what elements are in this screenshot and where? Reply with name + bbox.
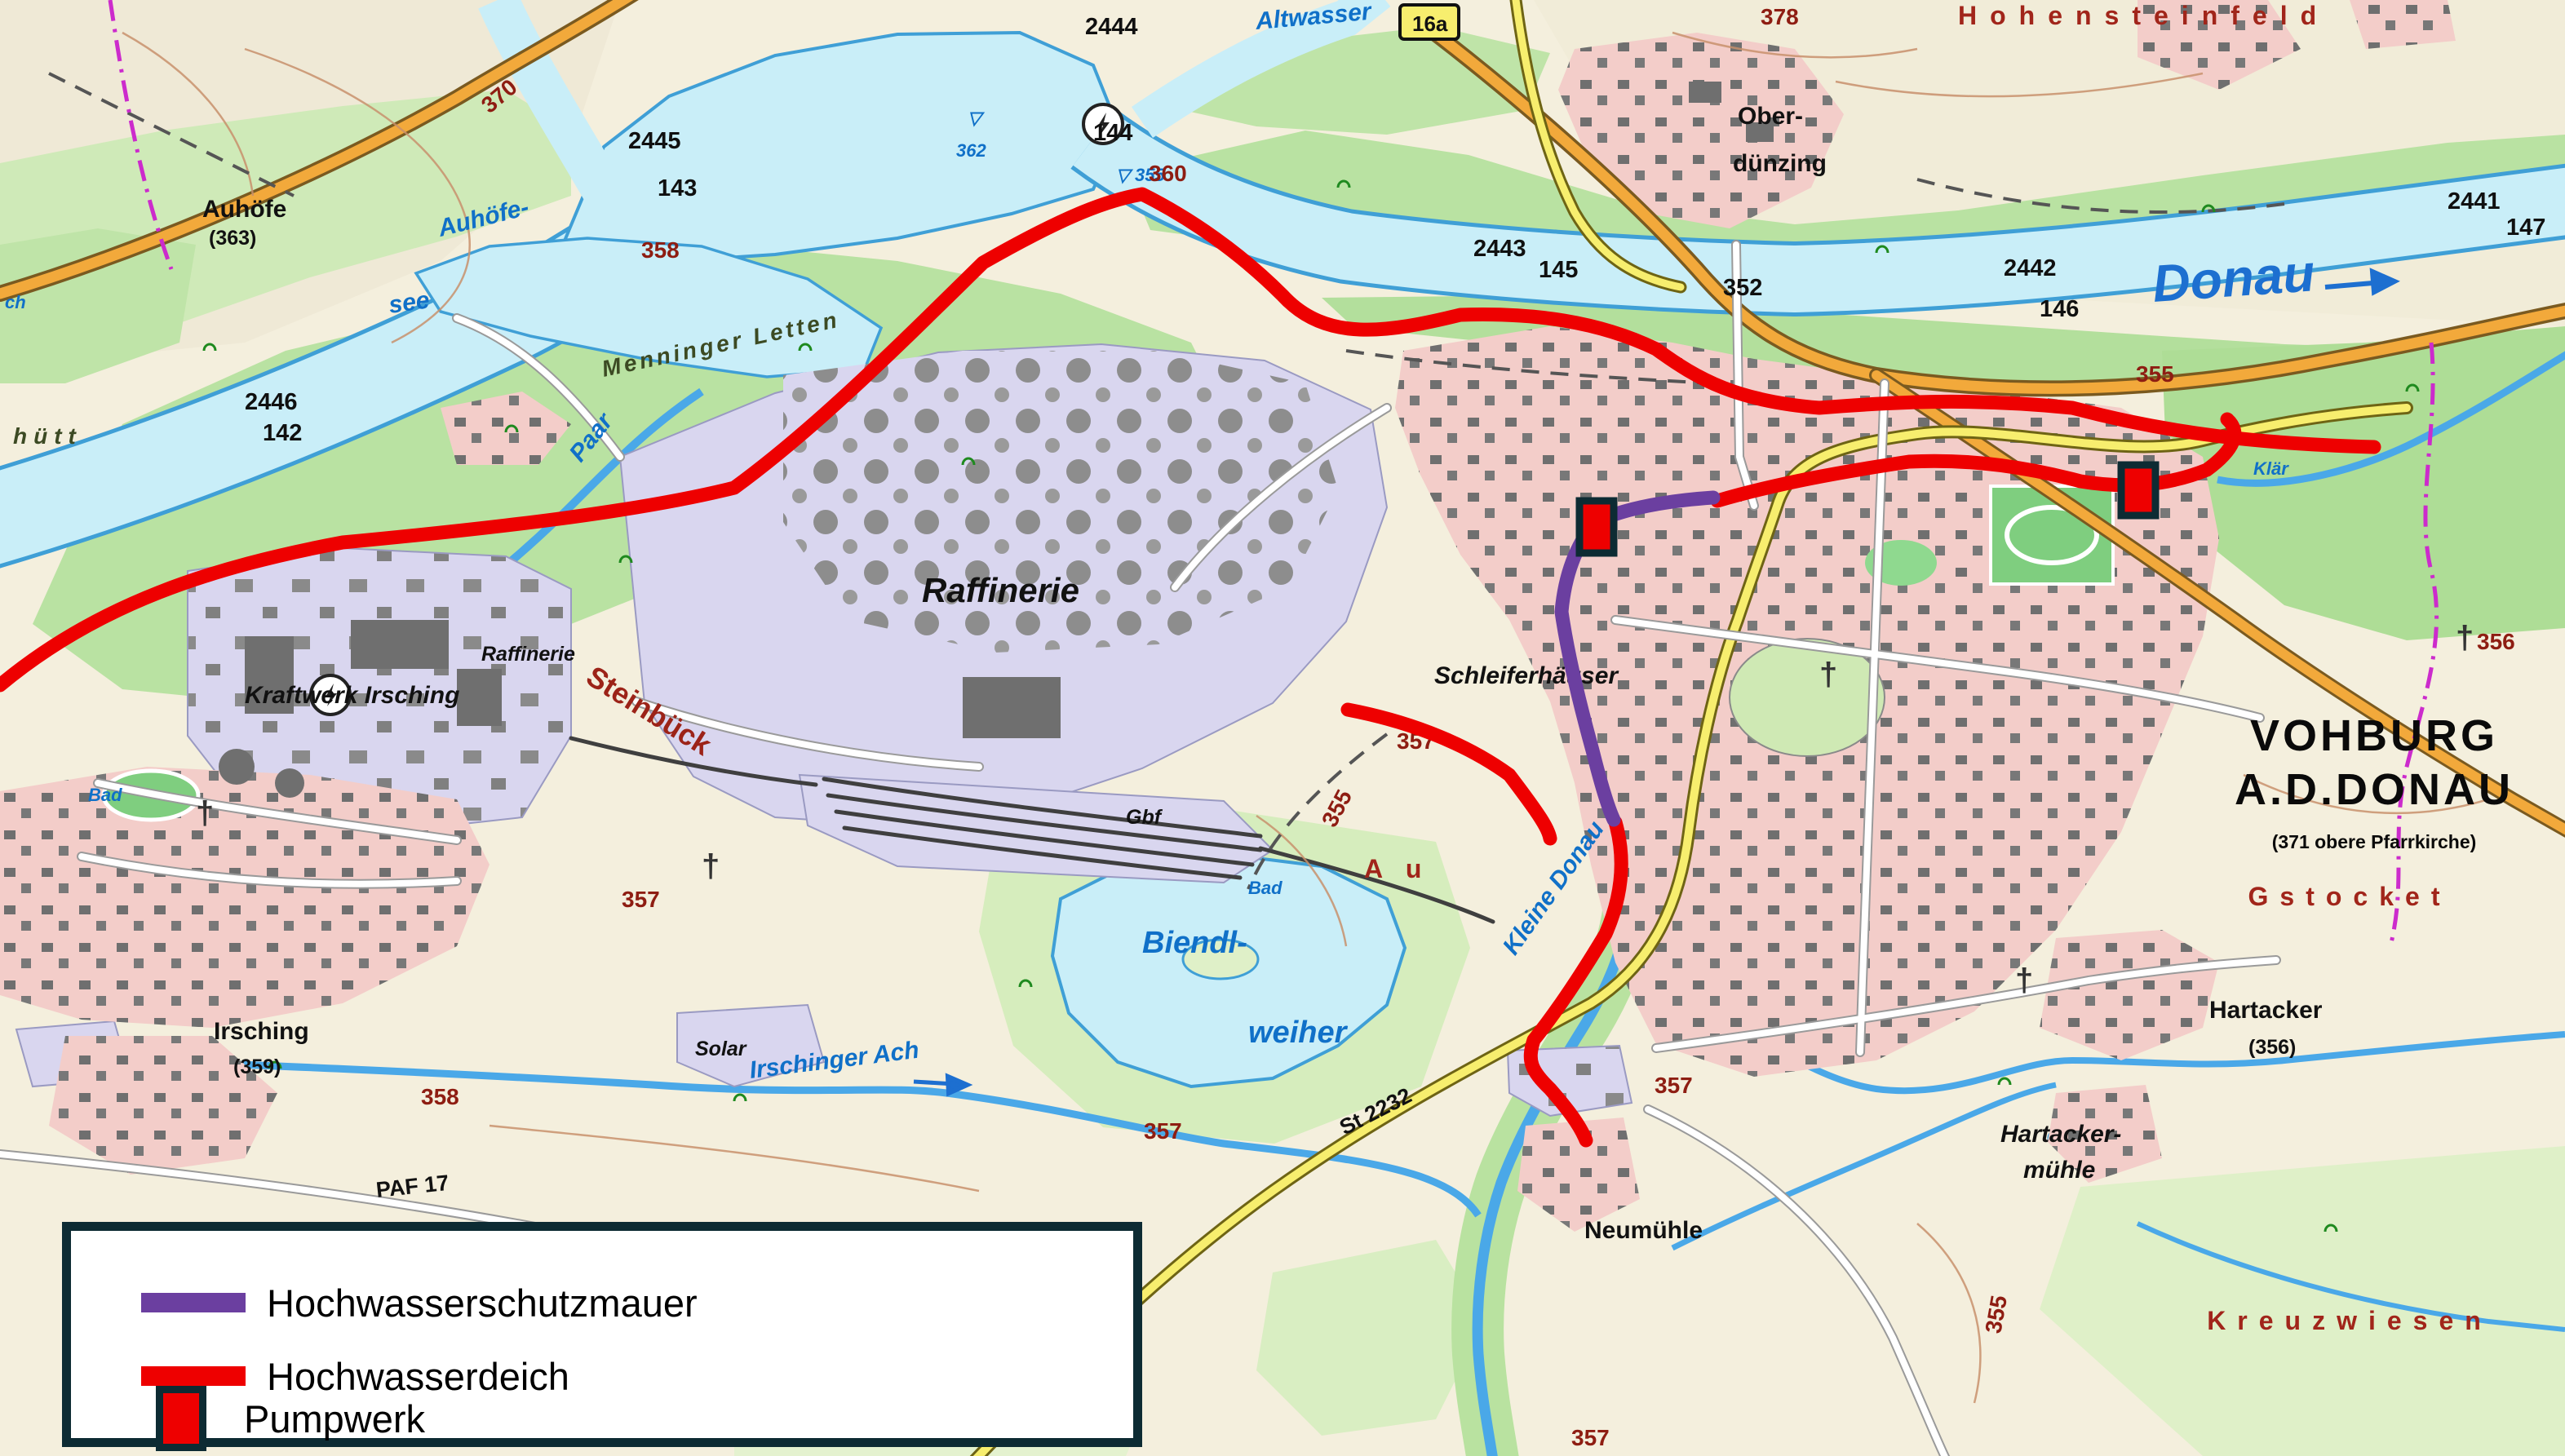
map-label: hütt <box>13 423 82 449</box>
map-label: Auhöfe <box>202 196 286 223</box>
map-label: Kreuzwiesen <box>2207 1306 2492 1335</box>
map-label: 147 <box>2506 215 2545 241</box>
map-label: Raffinerie <box>481 643 575 666</box>
map-label: VOHBURG <box>2250 711 2498 760</box>
map-label: 357 <box>1571 1425 1610 1450</box>
map-label: Raffinerie <box>922 571 1079 609</box>
map-label: mühle <box>2023 1157 2095 1184</box>
map-label: (359) <box>233 1055 281 1078</box>
map-label: 2446 <box>245 389 298 415</box>
map-label: Hartacker <box>2209 997 2323 1024</box>
map-label: 2445 <box>628 128 681 154</box>
pumpwerk-marker-2[interactable] <box>2121 465 2155 516</box>
map-label: (371 obere Pfarrkirche) <box>2272 831 2477 852</box>
map-label: (363) <box>209 227 256 250</box>
svg-text:†: † <box>2015 963 2033 998</box>
dike-line-swatch <box>141 1366 246 1386</box>
map-label: 358 <box>421 1084 459 1109</box>
map-label: Bad <box>88 785 122 805</box>
map-label: A u <box>1364 854 1429 883</box>
map-label: A.D.DONAU <box>2235 765 2514 814</box>
map-label: Biendl- <box>1142 926 1247 960</box>
map-label: dünzing <box>1733 150 1827 177</box>
map-label: 355 <box>2136 361 2174 387</box>
svg-text:†: † <box>1819 657 1837 693</box>
svg-text:†: † <box>2456 620 2474 656</box>
map-label: 146 <box>2040 296 2079 322</box>
map-label: ch <box>5 292 26 312</box>
map-screenshot: ††††† Altwasser2444144▽ 355▽362244514337… <box>0 0 2565 1456</box>
map-label: Gbf <box>1126 806 1163 829</box>
map-label: 142 <box>263 420 302 446</box>
map-label: weiher <box>1248 1016 1349 1050</box>
map-label: Kraftwerk Irsching <box>245 682 459 709</box>
svg-text:16a: 16a <box>1412 11 1448 36</box>
legend-item-deich: Hochwasserdeich <box>71 1352 1133 1401</box>
legend-label-deich: Hochwasserdeich <box>267 1354 569 1399</box>
legend-label-pumpwerk: Pumpwerk <box>244 1396 425 1441</box>
legend-item-schutzmauer: Hochwasserschutzmauer <box>71 1278 1133 1327</box>
map-label: Donau <box>2151 243 2317 313</box>
map-label: Irsching <box>214 1018 309 1045</box>
map-label: 352 <box>1723 275 1762 301</box>
map-label: Solar <box>695 1038 747 1060</box>
map-label: 362 <box>956 140 986 161</box>
map-label: Hartacker- <box>2000 1121 2121 1148</box>
map-label: 2441 <box>2448 188 2501 215</box>
map-label: 358 <box>641 237 680 263</box>
map-label: Gstocket <box>2248 882 2452 911</box>
map-label: 357 <box>1655 1073 1693 1098</box>
map-label: 357 <box>622 887 660 912</box>
wall-line-swatch <box>141 1293 246 1312</box>
map-label: see <box>387 286 431 319</box>
map-label: Ober- <box>1738 103 1803 130</box>
map-label: 360 <box>1149 161 1187 186</box>
map-label: 2443 <box>1473 236 1526 262</box>
map-label: Bad <box>1248 878 1282 898</box>
pump-square-swatch <box>156 1386 206 1451</box>
map-label: 357 <box>1144 1118 1182 1144</box>
map-label: Hohensteinfeld <box>1958 1 2329 30</box>
pumpwerk-marker-1[interactable] <box>1579 501 1614 553</box>
legend-item-pumpwerk: Pumpwerk <box>71 1394 1133 1443</box>
map-label: 2444 <box>1085 14 1138 40</box>
map-label: 378 <box>1761 4 1799 29</box>
map-label: (356) <box>2248 1036 2296 1059</box>
map-label: 144 <box>1093 120 1132 146</box>
map-label: Schleiferhäuser <box>1434 662 1619 689</box>
map-label: 356 <box>2477 629 2515 654</box>
map-label: Neumühle <box>1584 1217 1703 1244</box>
legend-box: Hochwasserschutzmauer Hochwasserdeich Pu… <box>62 1222 1142 1447</box>
road-shield-16a: 16a <box>1400 5 1459 39</box>
map-label: Klär <box>2253 458 2289 479</box>
map-label: 2442 <box>2004 255 2057 281</box>
map-label: 145 <box>1539 257 1578 283</box>
svg-text:†: † <box>702 848 720 884</box>
svg-text:†: † <box>196 795 214 831</box>
map-label: 143 <box>658 175 697 201</box>
legend-label-schutzmauer: Hochwasserschutzmauer <box>267 1281 698 1325</box>
